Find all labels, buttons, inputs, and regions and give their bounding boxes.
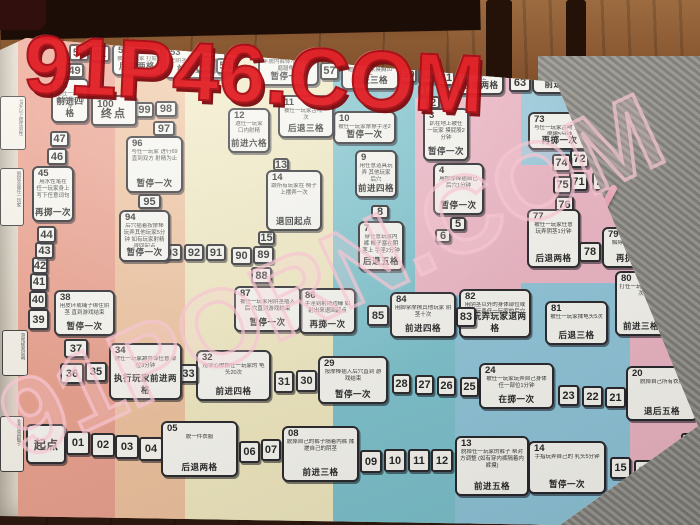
cell-action: 后退两格: [529, 252, 578, 264]
board-cell-43: 43: [35, 242, 54, 259]
cell-action: 暂停一次: [320, 388, 386, 400]
cell-number: 80: [621, 274, 632, 284]
board-cell-07: 07: [261, 439, 281, 461]
board-cell-46: 46: [47, 148, 67, 165]
board-cell-21: 21: [605, 387, 626, 408]
cell-description: 手指玩弄自己的 乳头5分钟: [532, 454, 602, 479]
board-cell-31: 31: [274, 371, 294, 393]
photo-scene: 起点0102030405脱一件衣服后退两格060708脱掉自己的裤子隔着内裤 揉…: [0, 0, 700, 525]
cell-action: 前进三格: [284, 466, 357, 478]
cell-action: 退后五格: [628, 405, 696, 417]
cell-number: 13: [461, 439, 472, 449]
cell-number: 29: [324, 359, 335, 369]
board-cell-97: 97: [153, 121, 175, 136]
cell-description: 用任意道具玩弄 其他玩家后穴: [359, 163, 393, 183]
cell-number: 38: [60, 293, 71, 303]
cell-number: 96: [132, 139, 143, 149]
board-cell-29: 29按摩棒插入后穴直到 游戏结束暂停一次: [318, 356, 388, 404]
board-cell-40: 40: [29, 291, 47, 309]
cell-action: 前进六格: [230, 137, 268, 149]
board-cell-22: 22: [582, 386, 603, 407]
board-cell-42: 42: [32, 257, 48, 274]
cell-description: 脱掉任一玩家的裤子 帮对方调整 (如有穿内裤隔着内裤摸): [459, 449, 525, 481]
cell-number: 14: [272, 173, 283, 183]
board-cell-13: 13脱掉任一玩家的裤子 帮对方调整 (如有穿内裤隔着内裤摸)前进五格: [455, 436, 529, 496]
cell-number: 9: [361, 153, 366, 163]
cell-description: 跟所有玩家在 椅子上摆弄一次: [270, 183, 318, 216]
cell-action: 前进五格: [457, 480, 527, 492]
cell-action: 暂停一次: [121, 246, 168, 258]
cell-description: 后穴插着按摩棒 玩弄其他玩家5分钟 如有玩家射精退回起点: [123, 223, 166, 247]
board-cell-10: 10: [384, 449, 406, 472]
cell-number: 24: [485, 366, 496, 376]
edge-card-fragment: 脱掉衣服任一玩家: [0, 168, 24, 226]
board-cell-14: 14手指玩弄自己的 乳头5分钟暂停一次: [528, 441, 606, 494]
cell-description: 被任一玩家玩弄自己身体 任一部位1分钟: [483, 376, 550, 394]
cell-action: 前进四格: [392, 322, 454, 334]
cell-description: 用水性笔在 任一玩家身上 写下任意词句: [36, 179, 70, 207]
board-cell-26: 26: [437, 376, 456, 396]
cell-number: 20: [632, 369, 643, 379]
board-cell-08: 08脱掉自己的裤子隔着内裤 揉搓自己的阴茎前进三格: [282, 426, 359, 482]
cell-description: 与任一玩家 进行69 直到双方 射精为止: [130, 149, 179, 178]
cell-number: 08: [288, 429, 299, 439]
board-cell-24: 24被任一玩家玩弄自己身体 任一部位1分钟在掷一次: [479, 363, 554, 409]
board-cell-09: 09: [360, 450, 382, 473]
board-cell-28: 28: [392, 374, 411, 394]
cell-action: 再掷一次: [34, 206, 72, 218]
board-cell-81: 81被任一玩家揉龟头5次后退三格: [545, 301, 608, 345]
board-cell-45: 45用水性笔在 任一玩家身上 写下任意词句再掷一次: [32, 166, 74, 222]
cell-action: 后退三格: [280, 122, 332, 134]
cell-number: 05: [167, 424, 178, 434]
board-cell-15: 15: [610, 457, 631, 479]
board-cell-27: 27: [415, 375, 434, 395]
board-cell-12: 12: [431, 449, 453, 472]
board-cell-04: 04: [139, 437, 163, 461]
board-cell-41: 41: [30, 273, 48, 291]
cell-action: 后退三格: [547, 329, 606, 341]
cell-description: 脱一件衣服: [165, 434, 234, 462]
cell-number: 79: [608, 230, 619, 240]
cell-number: 82: [465, 292, 476, 302]
board-cell-95: 95: [138, 194, 161, 209]
board-cell-83: 83: [456, 307, 476, 327]
cell-number: 94: [125, 213, 136, 223]
board-cell-06: 06: [239, 441, 260, 463]
board-cell-39: 39: [28, 309, 49, 330]
cell-number: 14: [534, 444, 545, 454]
cell-number: 81: [551, 304, 562, 314]
board-cell-11: 11: [408, 449, 430, 472]
board-cell-96: 96与任一玩家 进行69 直到双方 射精为止暂停一次: [126, 136, 183, 193]
board-cell-78: 78: [579, 242, 601, 262]
board-cell-05: 05脱一件衣服后退两格: [161, 421, 238, 477]
board-cell-94: 94后穴插着按摩棒 玩弄其他玩家5分钟 如有玩家射精退回起点暂停一次: [119, 210, 170, 262]
cell-number: 45: [38, 169, 49, 179]
board-cell-25: 25: [460, 377, 479, 397]
cell-description: 邀任一玩家 口内射精: [232, 121, 266, 138]
cell-action: 在掷一次: [481, 393, 552, 405]
cell-action: 暂停一次: [530, 478, 604, 490]
board-cell-47: 47: [50, 131, 69, 147]
board-cell-30: 30: [296, 370, 317, 392]
board-cell-92: 92: [184, 244, 204, 261]
cell-description: 被任一玩家揉龟头5次: [549, 314, 604, 330]
board-cell-44: 44: [37, 226, 56, 243]
board-cell-23: 23: [558, 385, 579, 406]
cell-action: 暂停一次: [128, 177, 181, 189]
cell-action: 暂停一次: [335, 128, 394, 140]
cell-description: 按摩棒插入后穴直到 游戏结束: [322, 369, 384, 389]
cell-action: 后退两格: [163, 461, 236, 473]
cell-description: 脱掉自己的裤子隔着内裤 揉搓自己的阴茎: [286, 439, 355, 467]
